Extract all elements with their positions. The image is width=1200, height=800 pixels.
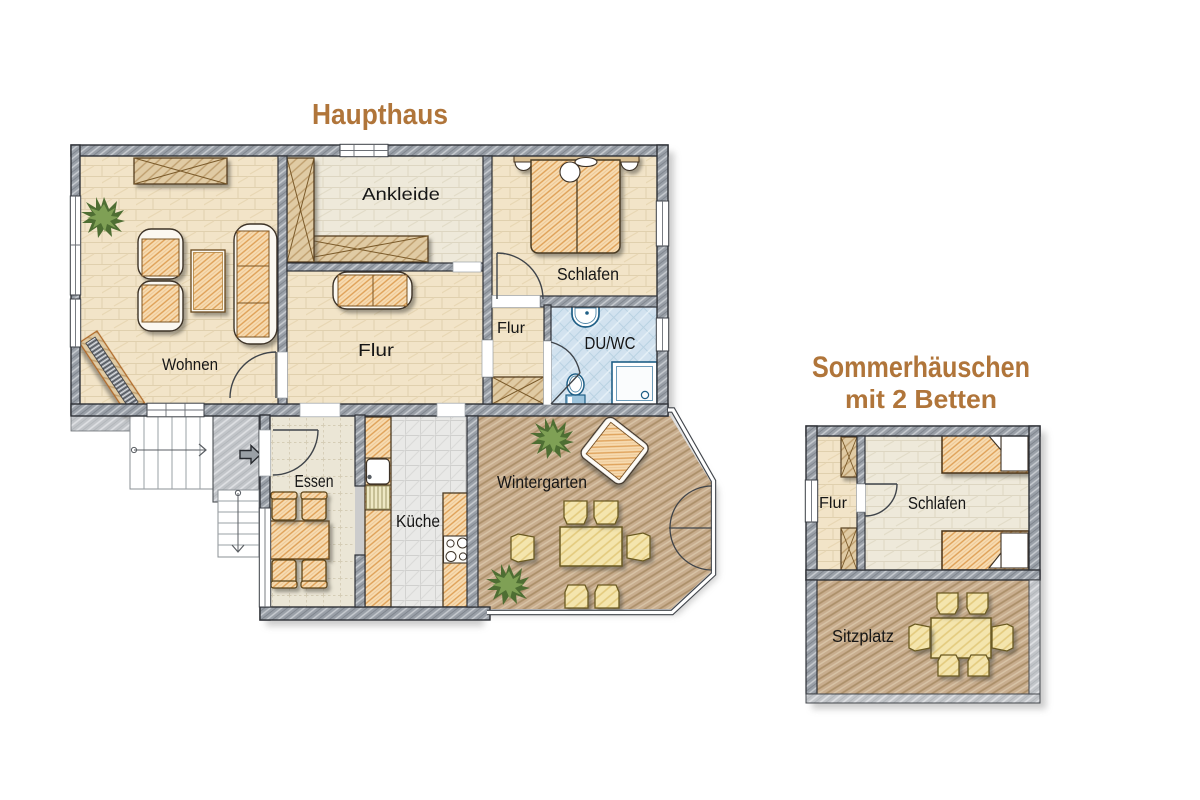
svg-text:Essen: Essen [295, 471, 334, 491]
svg-text:Sommerhäuschen: Sommerhäuschen [812, 351, 1030, 384]
svg-text:Wohnen: Wohnen [162, 355, 218, 374]
svg-text:Flur: Flur [819, 495, 847, 512]
svg-text:Schlafen: Schlafen [908, 493, 966, 513]
svg-text:Wintergarten: Wintergarten [497, 472, 587, 492]
svg-text:Ankleide: Ankleide [362, 184, 440, 204]
svg-text:Schlafen: Schlafen [557, 264, 619, 284]
svg-text:Flur: Flur [358, 340, 394, 360]
svg-text:Küche: Küche [396, 511, 440, 531]
svg-text:Sitzplatz: Sitzplatz [832, 626, 894, 646]
svg-text:Haupthaus: Haupthaus [312, 99, 448, 131]
svg-text:Flur: Flur [497, 320, 525, 337]
svg-text:mit 2 Betten: mit 2 Betten [845, 384, 997, 414]
svg-text:DU/WC: DU/WC [585, 333, 636, 353]
